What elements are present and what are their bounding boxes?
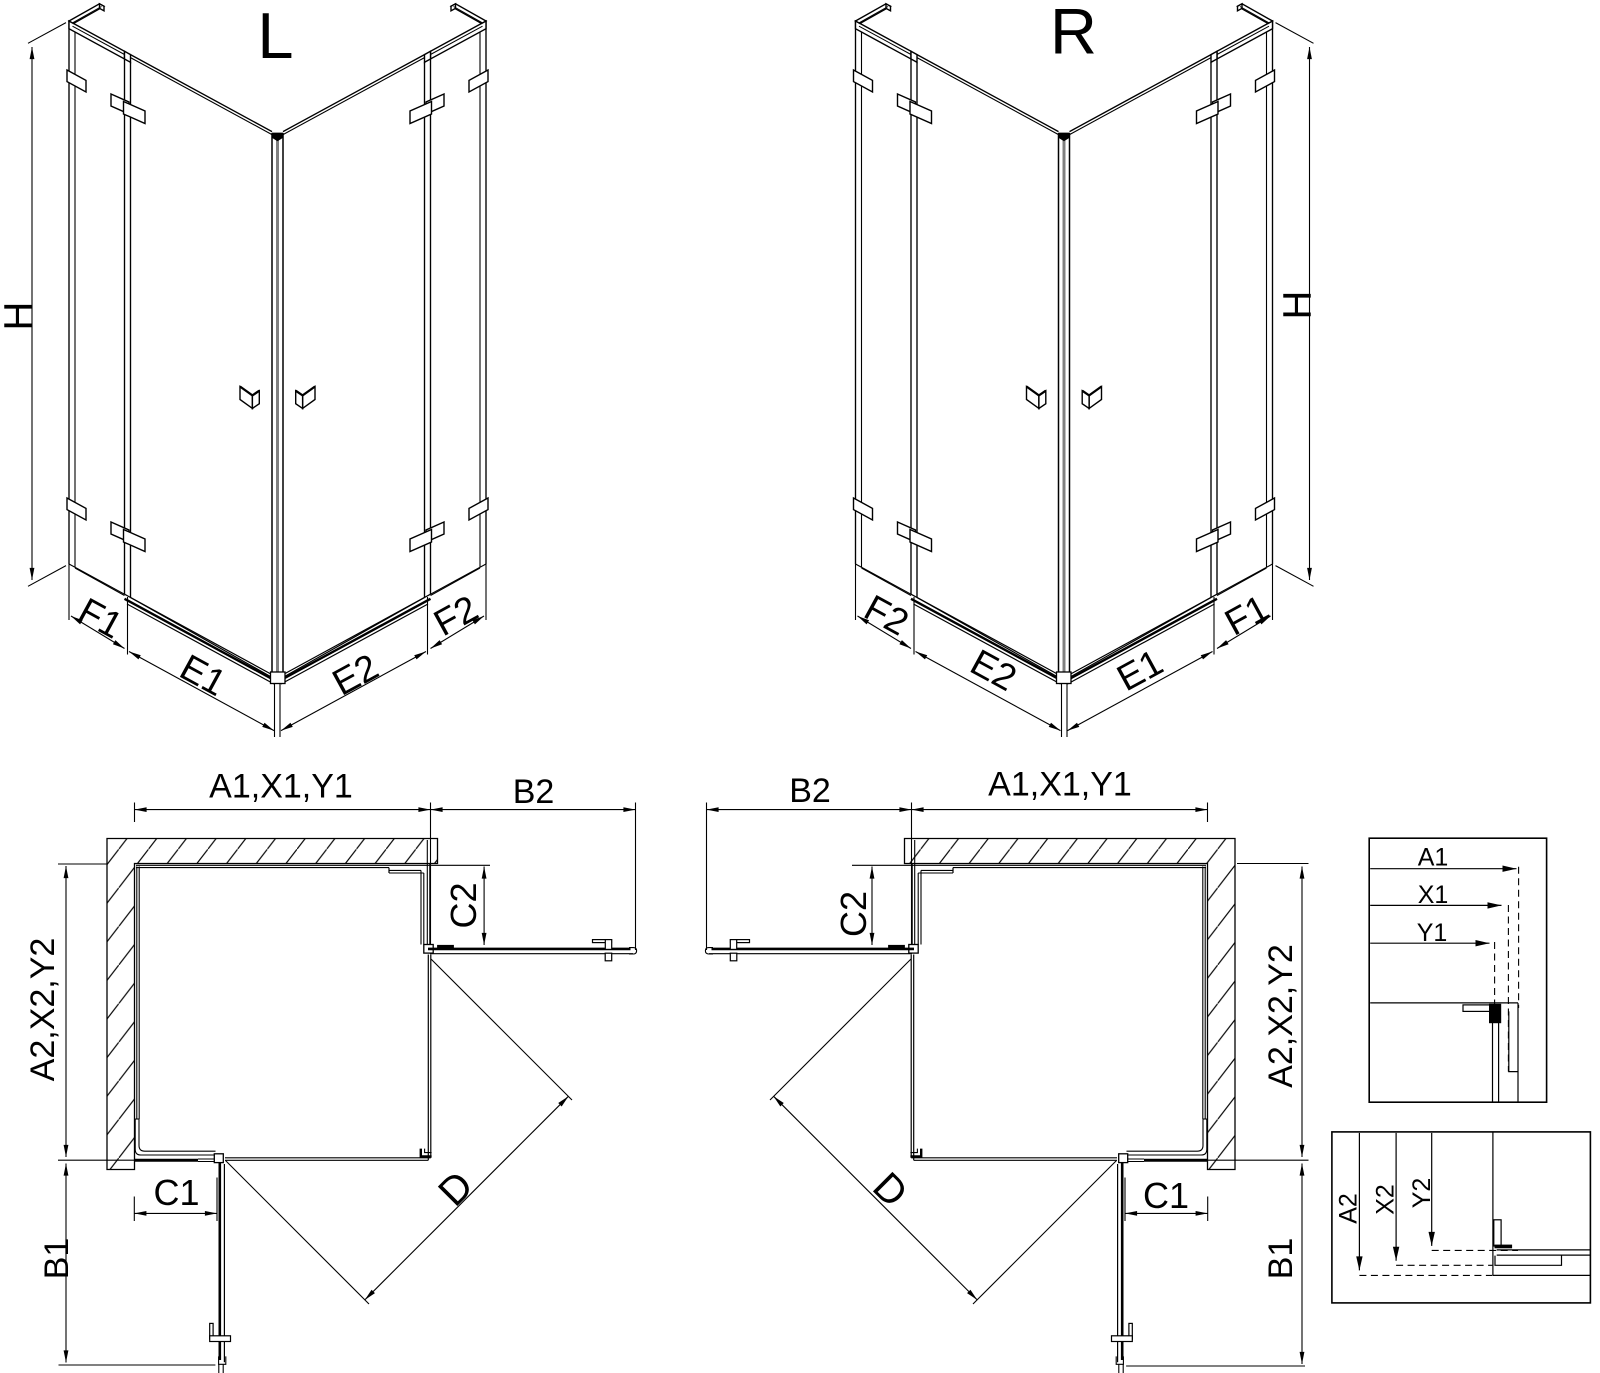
svg-text:B2: B2 (513, 773, 555, 811)
svg-text:C2: C2 (443, 882, 484, 928)
svg-text:H: H (1275, 291, 1319, 320)
svg-text:A1,X1,Y1: A1,X1,Y1 (209, 768, 353, 806)
svg-text:R: R (1050, 0, 1097, 67)
svg-text:C1: C1 (1143, 1175, 1189, 1216)
svg-text:X1: X1 (1418, 881, 1449, 909)
svg-text:L: L (257, 0, 293, 72)
svg-text:A1,X1,Y1: A1,X1,Y1 (988, 766, 1132, 804)
svg-text:B2: B2 (789, 772, 831, 810)
svg-text:A2,X2,Y2: A2,X2,Y2 (1262, 944, 1300, 1088)
svg-text:C2: C2 (833, 891, 874, 937)
svg-text:A2,X2,Y2: A2,X2,Y2 (24, 938, 62, 1082)
svg-text:B1: B1 (38, 1238, 76, 1280)
svg-text:A1: A1 (1418, 844, 1449, 872)
svg-text:C1: C1 (153, 1172, 199, 1213)
svg-text:Y1: Y1 (1417, 919, 1448, 947)
svg-text:A2: A2 (1335, 1193, 1363, 1224)
svg-text:Y2: Y2 (1408, 1178, 1436, 1209)
svg-text:X2: X2 (1372, 1184, 1400, 1215)
svg-text:B1: B1 (1262, 1238, 1300, 1280)
svg-text:H: H (0, 302, 40, 331)
